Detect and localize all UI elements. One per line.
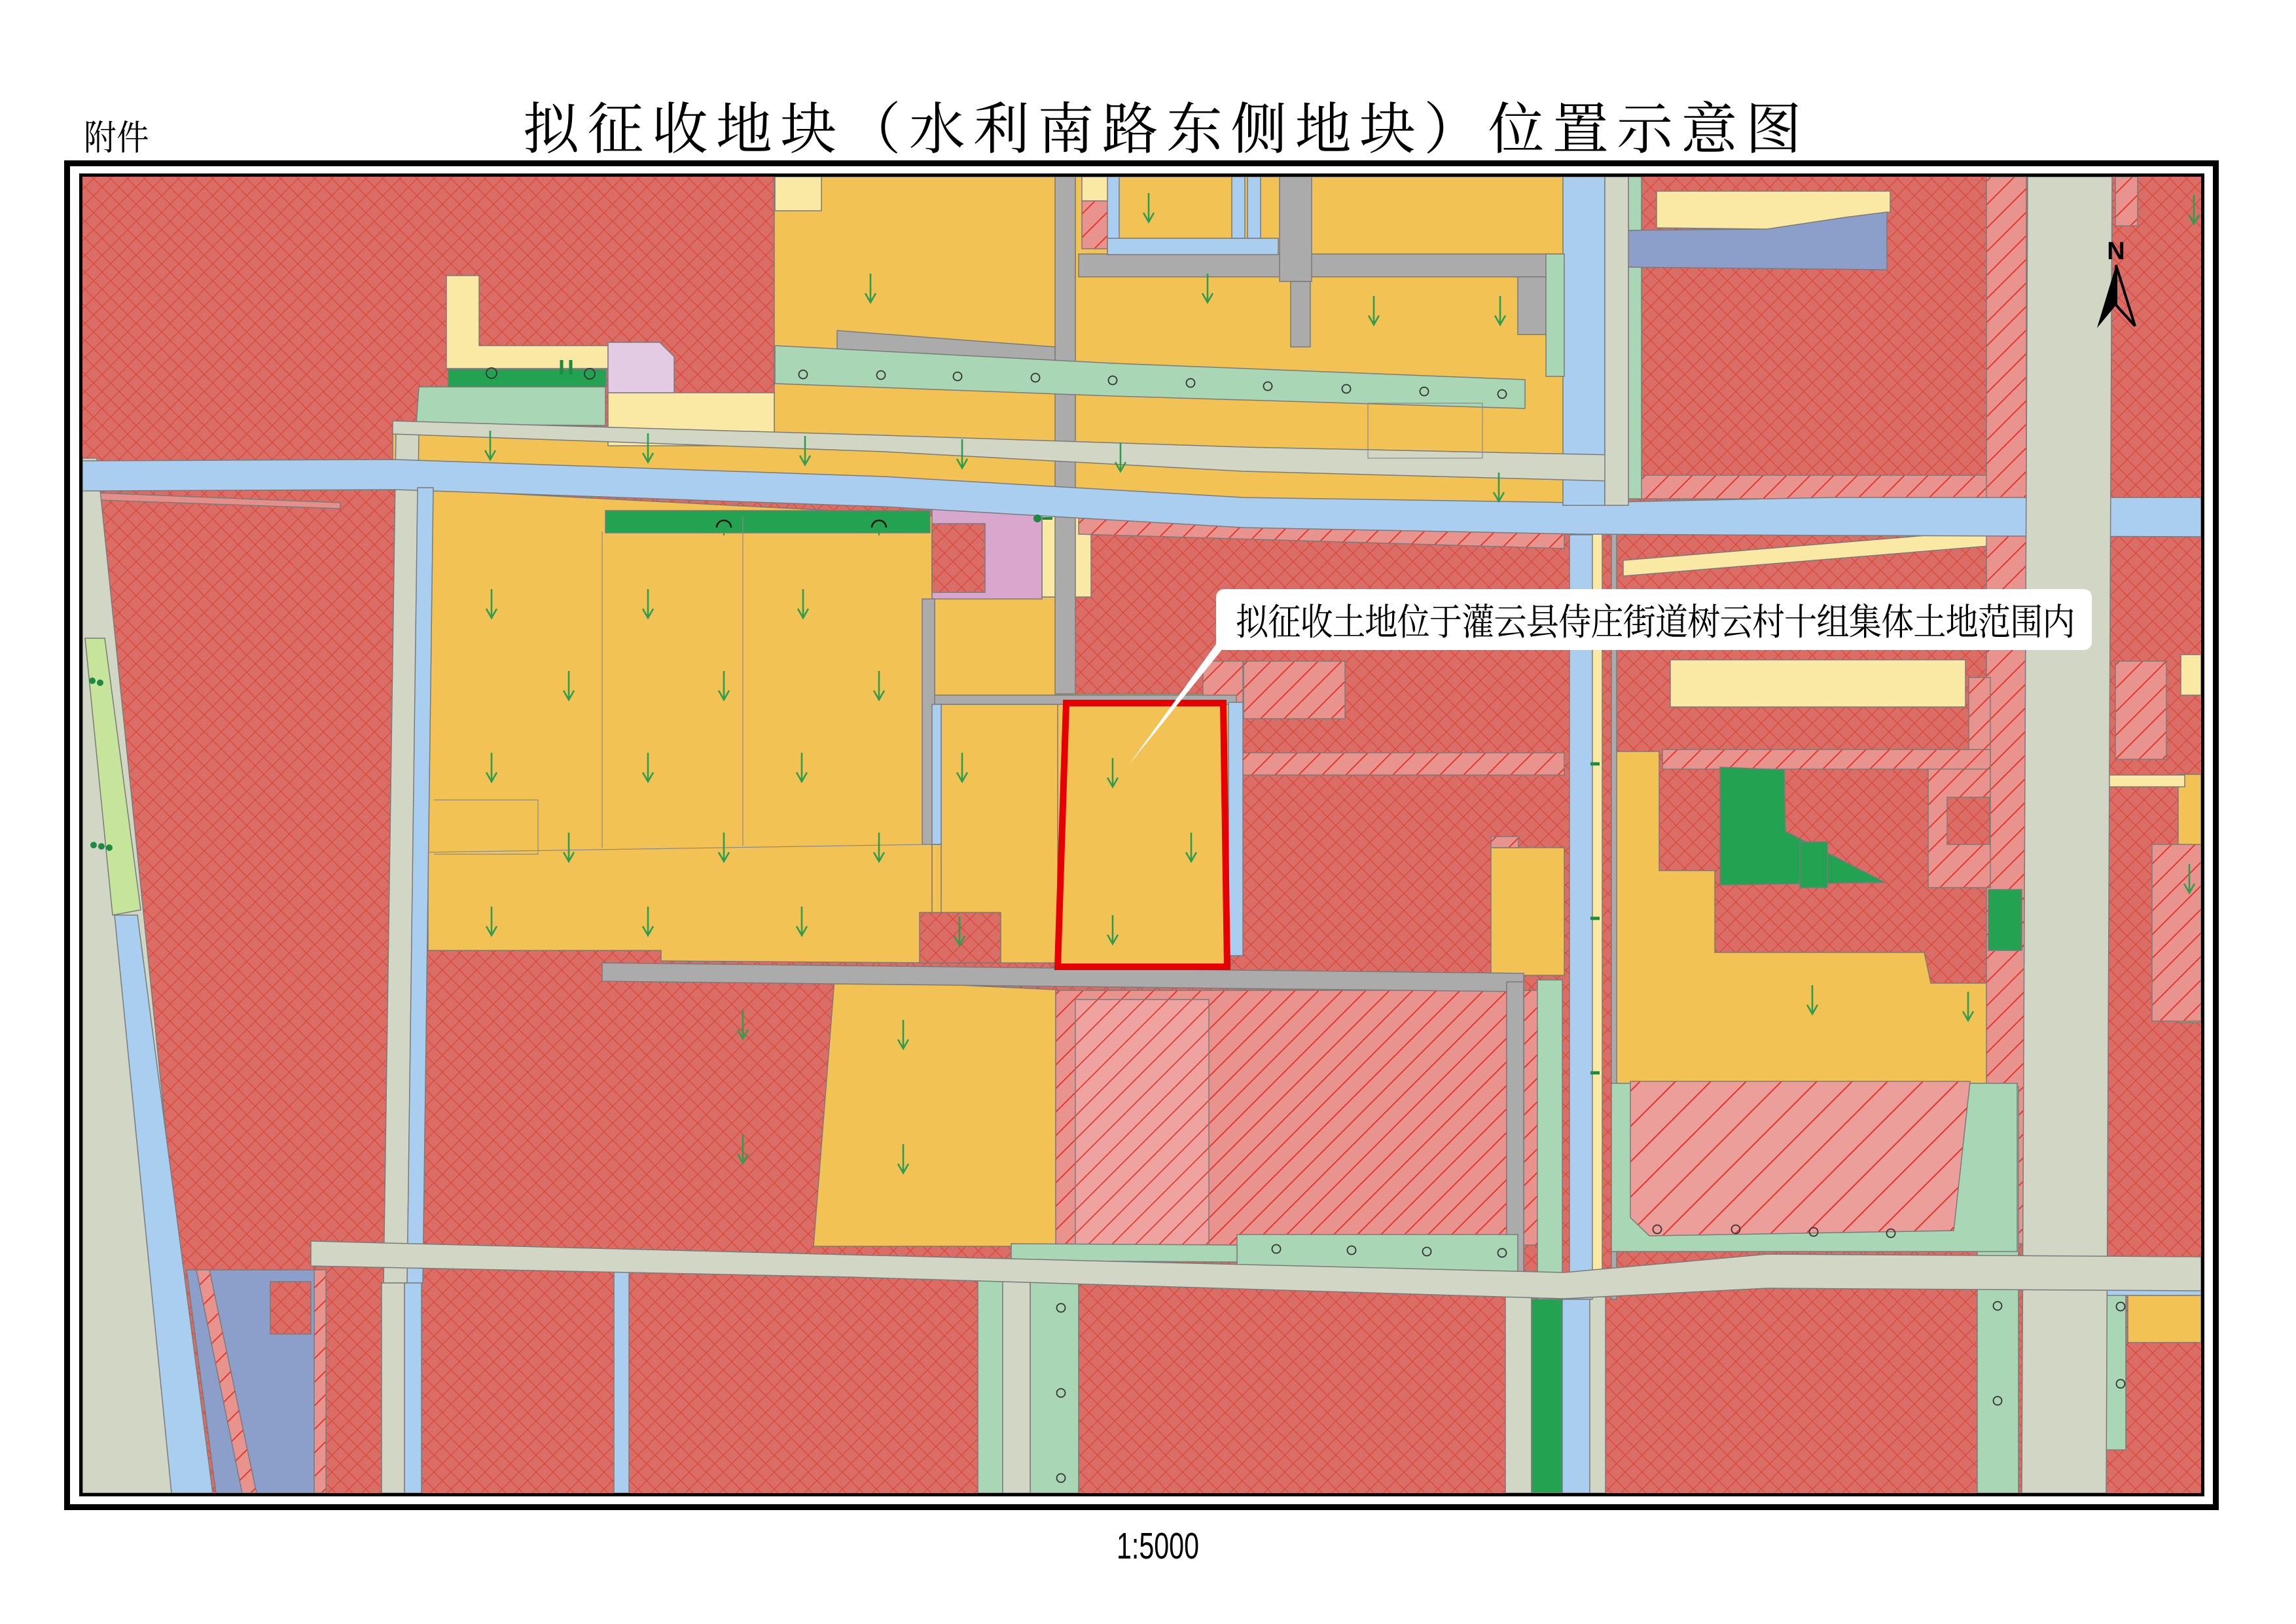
svg-text:N: N xyxy=(2107,238,2125,265)
svg-text:1:5000: 1:5000 xyxy=(1117,1525,1199,1567)
